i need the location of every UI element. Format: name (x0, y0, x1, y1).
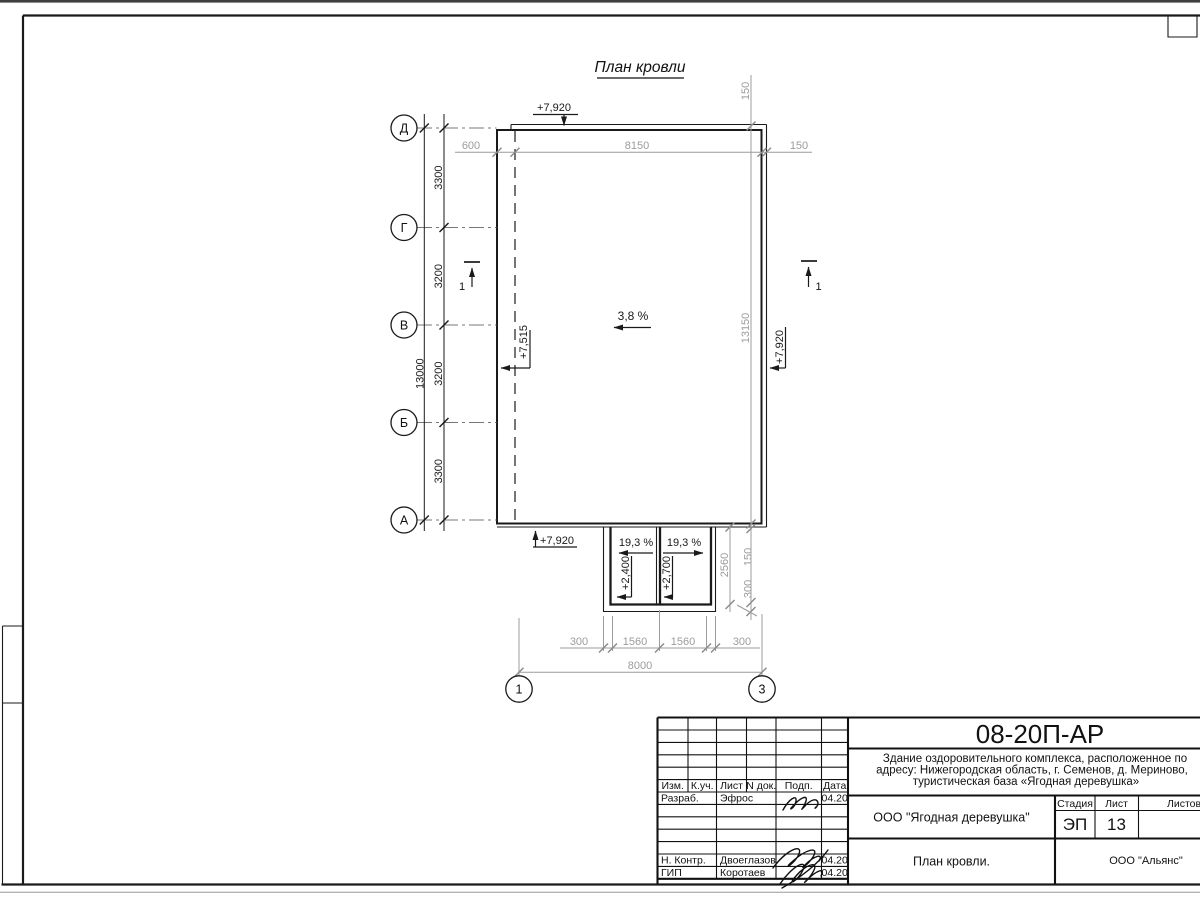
tb-client: ООО "Ягодная деревушка" (873, 811, 1029, 825)
dim-canopy-2560: 2560 (719, 553, 731, 577)
top-dimensions: 600 8150 150 (455, 140, 812, 157)
tb-sheet-number: 13 (1107, 815, 1126, 834)
section-left-label: 1 (459, 281, 465, 293)
tb-stage-label: Стадия (1057, 798, 1093, 810)
tb-date-nkontr: 04.20 (822, 855, 848, 867)
axis-label-1: 1 (516, 682, 523, 696)
dim-top-600: 600 (462, 140, 480, 152)
tb-project-line3: туристическая база «Ягодная деревушка» (913, 776, 1139, 788)
dim-left-total-13000: 13000 (415, 358, 427, 389)
axis-label-3: 3 (759, 682, 766, 696)
axis-label-b: Б (400, 416, 408, 430)
tb-name-efros: Эфрос (720, 793, 753, 805)
elev-top-label: +7,920 (537, 102, 571, 114)
dim-left-3300-bottom: 3300 (433, 459, 445, 483)
dim-bottom-1560-right: 1560 (671, 636, 695, 648)
axis-label-v: В (400, 318, 408, 332)
elev-bottom-label: +7,920 (540, 535, 574, 547)
left-margin-boxes (3, 626, 24, 884)
window-top-edge (0, 0, 1200, 3)
tb-col-data: Дата (823, 780, 846, 792)
drawing-sheet: План кровли Д Г В Б А (0, 0, 1200, 900)
corner-stamp-box (1168, 16, 1197, 37)
tb-role-razrab: Разраб. (661, 793, 699, 805)
axis-label-d: Д (400, 121, 409, 135)
dim-top-8150: 8150 (625, 140, 649, 152)
left-dimensions: 3300 3200 3200 3300 13000 (415, 114, 449, 531)
signature-razrab (783, 797, 818, 810)
dim-left-3300-top: 3300 (433, 165, 445, 189)
tb-sheets-label: Листов (1167, 798, 1200, 810)
tb-col-podp: Подп. (785, 780, 813, 792)
dim-canopy-150: 150 (743, 548, 755, 566)
tb-name-korotaev: Коротаев (720, 867, 766, 879)
dim-right-150-top: 150 (740, 82, 752, 100)
tb-date-gip: 04.20 (822, 867, 848, 879)
tb-drawing-name: План кровли. (913, 855, 990, 869)
dim-bottom-1560-left: 1560 (623, 636, 647, 648)
tb-doc-number: 08-20П-АР (976, 719, 1105, 749)
dim-top-150: 150 (790, 140, 808, 152)
tb-company: ООО "Альянс" (1109, 855, 1183, 867)
dim-canopy-300: 300 (743, 580, 755, 598)
tb-sheet-label: Лист (1105, 798, 1128, 810)
title-block: Изм. К.уч. Лист N док. Подп. Дата Разраб… (658, 718, 1200, 889)
dim-left-3200-lower: 3200 (433, 361, 445, 385)
tb-col-izm: Изм. (661, 780, 684, 792)
dim-bottom-total-8000: 8000 (628, 660, 652, 672)
dim-bottom-300-left: 300 (570, 636, 588, 648)
section-marks: 1 1 (459, 261, 822, 293)
tb-project-line1: Здание оздоровительного комплекса, распо… (883, 753, 1187, 765)
section-right-label: 1 (815, 281, 821, 293)
elev-left-label: +7,515 (518, 325, 530, 359)
slope-marks: 3,8 % 19,3 % 19,3 % (614, 309, 703, 553)
axis-label-g: Г (401, 221, 408, 235)
column-axes: 1 3 (506, 676, 775, 702)
dim-right-13150: 13150 (740, 313, 752, 344)
tb-col-list: Лист (720, 780, 743, 792)
tb-col-kuch: К.уч. (691, 780, 714, 792)
axis-label-a: А (400, 513, 409, 527)
elev-right-label: +7,920 (774, 330, 786, 364)
canopy-elev-right-label: +2,700 (661, 556, 673, 590)
dim-left-3200-upper: 3200 (433, 264, 445, 288)
tb-project-line2: адресу: Нижегородская область, г. Семено… (876, 765, 1188, 777)
bottom-dimensions: 300 1560 1560 300 8000 (515, 610, 767, 677)
roof-plan-canvas: План кровли Д Г В Б А (0, 0, 1200, 900)
tb-stage-value: ЭП (1063, 815, 1087, 834)
tb-col-ndok: N док. (746, 780, 776, 792)
dim-bottom-300-right: 300 (733, 636, 751, 648)
drawing-title: План кровли (595, 59, 686, 78)
tb-role-nkontr: Н. Контр. (661, 855, 706, 867)
right-dimensions: 150 13150 2560 150 300 (719, 75, 757, 620)
page-title: План кровли (595, 59, 686, 76)
tb-date-razrab: 04.20 (822, 793, 848, 805)
canopy-slope-right-label: 19,3 % (667, 537, 701, 549)
slope-main-label: 3,8 % (618, 309, 649, 323)
canopy-elev-left-label: +2,400 (620, 556, 632, 590)
tb-role-gip: ГИП (661, 867, 682, 879)
canopy-slope-left-label: 19,3 % (619, 537, 653, 549)
roof-outline (497, 125, 767, 528)
tb-name-dvoeglazov: Двоеглазов (720, 855, 776, 867)
